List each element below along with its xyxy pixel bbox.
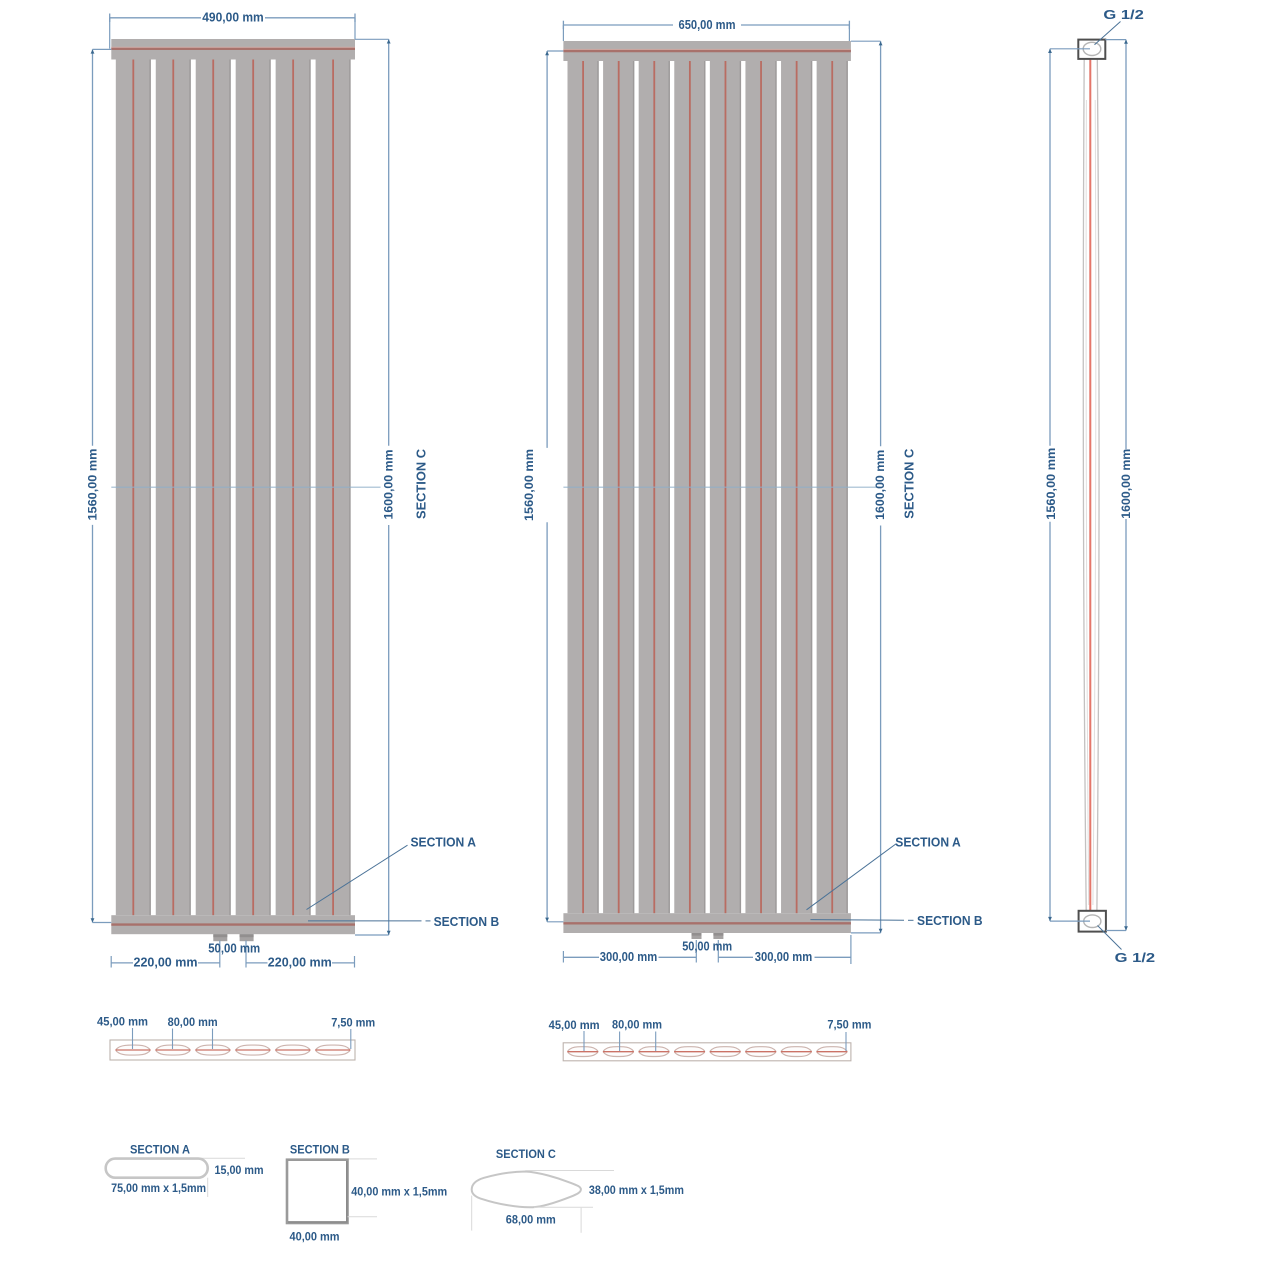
svg-text:1560,00 mm: 1560,00 mm [522, 449, 536, 521]
svg-text:80,00 mm: 80,00 mm [612, 1017, 662, 1031]
svg-text:1560,00 mm: 1560,00 mm [1044, 448, 1058, 520]
svg-text:650,00 mm: 650,00 mm [679, 18, 736, 32]
svg-text:1600,00 mm: 1600,00 mm [1119, 449, 1133, 519]
svg-text:68,00 mm: 68,00 mm [506, 1213, 556, 1227]
svg-text:80,00 mm: 80,00 mm [168, 1015, 218, 1029]
svg-text:40,00 mm x 1,5mm: 40,00 mm x 1,5mm [351, 1185, 447, 1199]
svg-text:7,50 mm: 7,50 mm [827, 1018, 871, 1032]
svg-text:SECTION A: SECTION A [895, 834, 961, 849]
svg-text:SECTION B: SECTION B [917, 913, 983, 928]
svg-text:220,00 mm: 220,00 mm [268, 956, 332, 970]
svg-text:SECTION A: SECTION A [130, 1143, 191, 1156]
svg-text:1600,00 mm: 1600,00 mm [381, 449, 395, 519]
svg-text:15,00 mm: 15,00 mm [215, 1163, 264, 1177]
svg-text:220,00 mm: 220,00 mm [134, 956, 198, 970]
svg-text:SECTION B: SECTION B [434, 914, 500, 929]
svg-text:75,00 mm x 1,5mm: 75,00 mm x 1,5mm [111, 1181, 206, 1195]
svg-text:7,50 mm: 7,50 mm [331, 1015, 375, 1029]
svg-text:50,00 mm: 50,00 mm [208, 941, 260, 955]
svg-text:45,00 mm: 45,00 mm [549, 1018, 600, 1032]
svg-text:SECTION C: SECTION C [415, 449, 429, 519]
svg-text:SECTION C: SECTION C [496, 1148, 557, 1161]
svg-text:490,00 mm: 490,00 mm [202, 11, 264, 25]
svg-text:300,00 mm: 300,00 mm [600, 950, 658, 964]
svg-text:SECTION A: SECTION A [410, 835, 476, 850]
svg-text:G 1/2: G 1/2 [1115, 950, 1156, 965]
svg-text:300,00 mm: 300,00 mm [755, 950, 813, 964]
svg-text:G 1/2: G 1/2 [1103, 7, 1144, 22]
svg-text:50,00 mm: 50,00 mm [682, 939, 732, 953]
svg-text:38,00 mm x 1,5mm: 38,00 mm x 1,5mm [589, 1183, 684, 1197]
svg-text:SECTION C: SECTION C [903, 449, 917, 519]
svg-text:SECTION B: SECTION B [290, 1143, 350, 1156]
svg-text:1600,00 mm: 1600,00 mm [873, 450, 887, 520]
svg-text:45,00 mm: 45,00 mm [97, 1014, 148, 1028]
svg-text:1560,00 mm: 1560,00 mm [86, 448, 100, 520]
svg-text:40,00 mm: 40,00 mm [290, 1229, 340, 1243]
